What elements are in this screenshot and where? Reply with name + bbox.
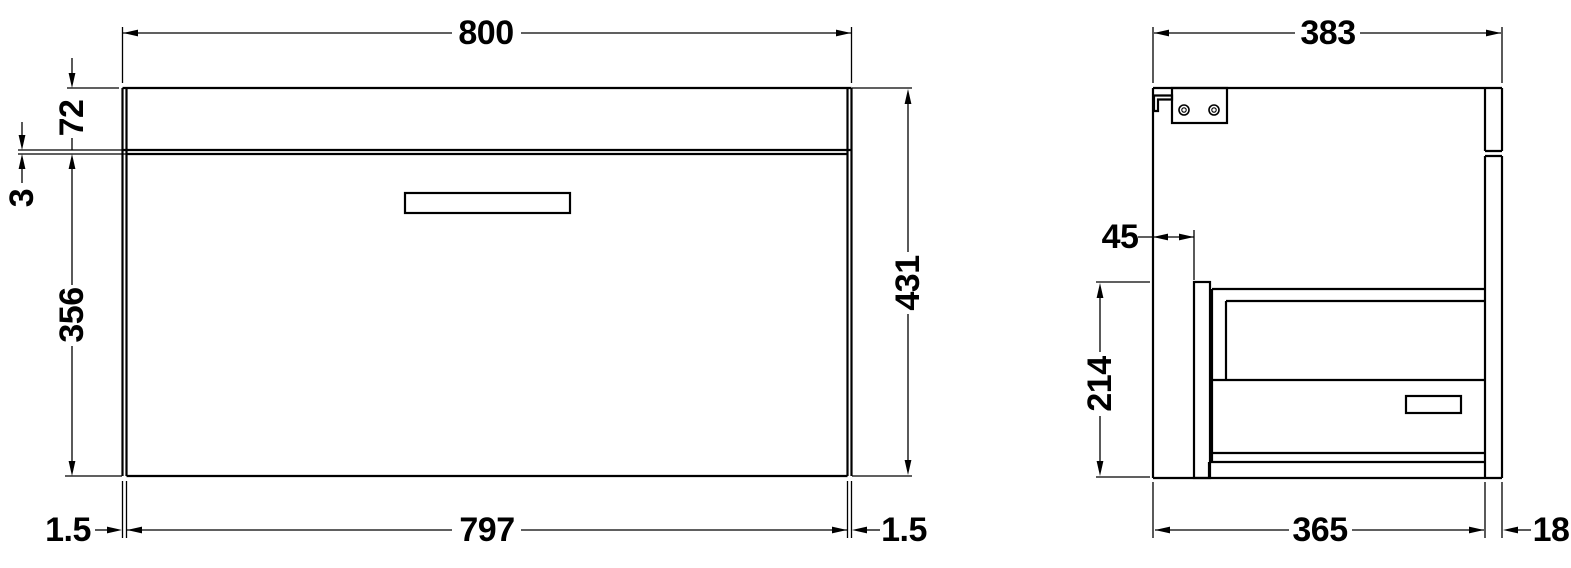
dim-worktop-height-label: 72	[53, 100, 91, 137]
dim-front-panel-thickness: 18	[1503, 511, 1569, 549]
arrowhead-up	[19, 154, 26, 169]
front-view: 800 72 3 356 431	[3, 14, 927, 549]
dim-worktop-height: 72	[53, 58, 91, 150]
dim-overall-height-label: 431	[889, 255, 927, 310]
dim-overhang-left-label: 1.5	[45, 511, 91, 549]
screw-hole-icon	[1179, 105, 1189, 115]
arrowhead-right	[1469, 527, 1484, 534]
screw-hole-icon	[1212, 108, 1216, 112]
technical-drawing-page: 800 72 3 356 431	[0, 0, 1571, 568]
arrowhead-left	[123, 30, 138, 37]
dim-body-depth-label: 365	[1292, 511, 1347, 549]
arrowhead-left	[1155, 527, 1170, 534]
arrowhead-right	[107, 527, 122, 534]
dim-wall-offset-label: 45	[1102, 218, 1139, 256]
arrowhead-down	[905, 460, 912, 475]
wall-bracket	[1172, 88, 1227, 123]
arrowhead-down	[1097, 461, 1104, 476]
dim-back-rail-height-label: 214	[1081, 356, 1119, 412]
arrowhead-up	[905, 89, 912, 104]
front-extension-lines	[18, 27, 912, 538]
arrowhead-right	[1486, 30, 1501, 37]
arrowhead-up	[69, 154, 76, 169]
dim-overhang-right: 1.5	[852, 511, 927, 549]
worktop-side	[1153, 88, 1502, 151]
dim-top-depth: 383	[1154, 14, 1501, 52]
dim-wall-offset: 45	[1102, 218, 1194, 256]
dim-cabinet-height: 356	[53, 154, 91, 476]
arrowhead-right	[832, 527, 847, 534]
dim-top-depth-label: 383	[1300, 14, 1355, 52]
dim-back-rail-height: 214	[1081, 283, 1119, 476]
arrowhead-left	[1503, 527, 1518, 534]
arrowhead-left	[1153, 234, 1168, 241]
arrowhead-right	[1179, 234, 1194, 241]
dim-front-panel-thickness-label: 18	[1533, 511, 1570, 549]
vanity-dimension-drawing: 800 72 3 356 431	[0, 0, 1571, 568]
worktop-front	[123, 88, 852, 150]
arrowhead-up	[1097, 283, 1104, 298]
drawer-runner	[1406, 396, 1461, 413]
cabinet-front	[123, 88, 852, 476]
arrowhead-left	[127, 527, 142, 534]
arrowhead-down	[69, 461, 76, 476]
arrowhead-left	[852, 527, 867, 534]
dim-cabinet-width-label: 797	[459, 511, 514, 549]
dim-overhang-left: 1.5	[45, 511, 122, 549]
screw-hole-icon	[1209, 105, 1219, 115]
front-panel-side	[1485, 156, 1502, 478]
dim-body-depth: 365	[1155, 511, 1484, 549]
dim-overall-height: 431	[889, 89, 927, 475]
arrowhead-right	[836, 30, 851, 37]
drawer-box-side	[1209, 289, 1485, 478]
side-view: 383 45 214 365 18	[1081, 14, 1569, 549]
dim-overhang-right-label: 1.5	[881, 511, 927, 549]
dim-top-width: 800	[123, 14, 851, 52]
dim-cabinet-height-label: 356	[53, 287, 91, 342]
back-rail	[1194, 282, 1210, 478]
screw-hole-icon	[1182, 108, 1186, 112]
arrowhead-left	[1154, 30, 1169, 37]
front-view-outline	[123, 88, 852, 476]
dim-worktop-gap: 3	[3, 122, 41, 207]
bracket-hook	[1154, 96, 1172, 112]
drawer-handle	[405, 193, 570, 213]
dim-top-width-label: 800	[458, 14, 513, 52]
arrowhead-down	[69, 73, 76, 88]
dim-worktop-gap-label: 3	[3, 189, 41, 207]
side-view-outline	[1153, 88, 1502, 478]
arrowhead-down	[19, 135, 26, 150]
dim-cabinet-width: 797	[127, 511, 847, 549]
